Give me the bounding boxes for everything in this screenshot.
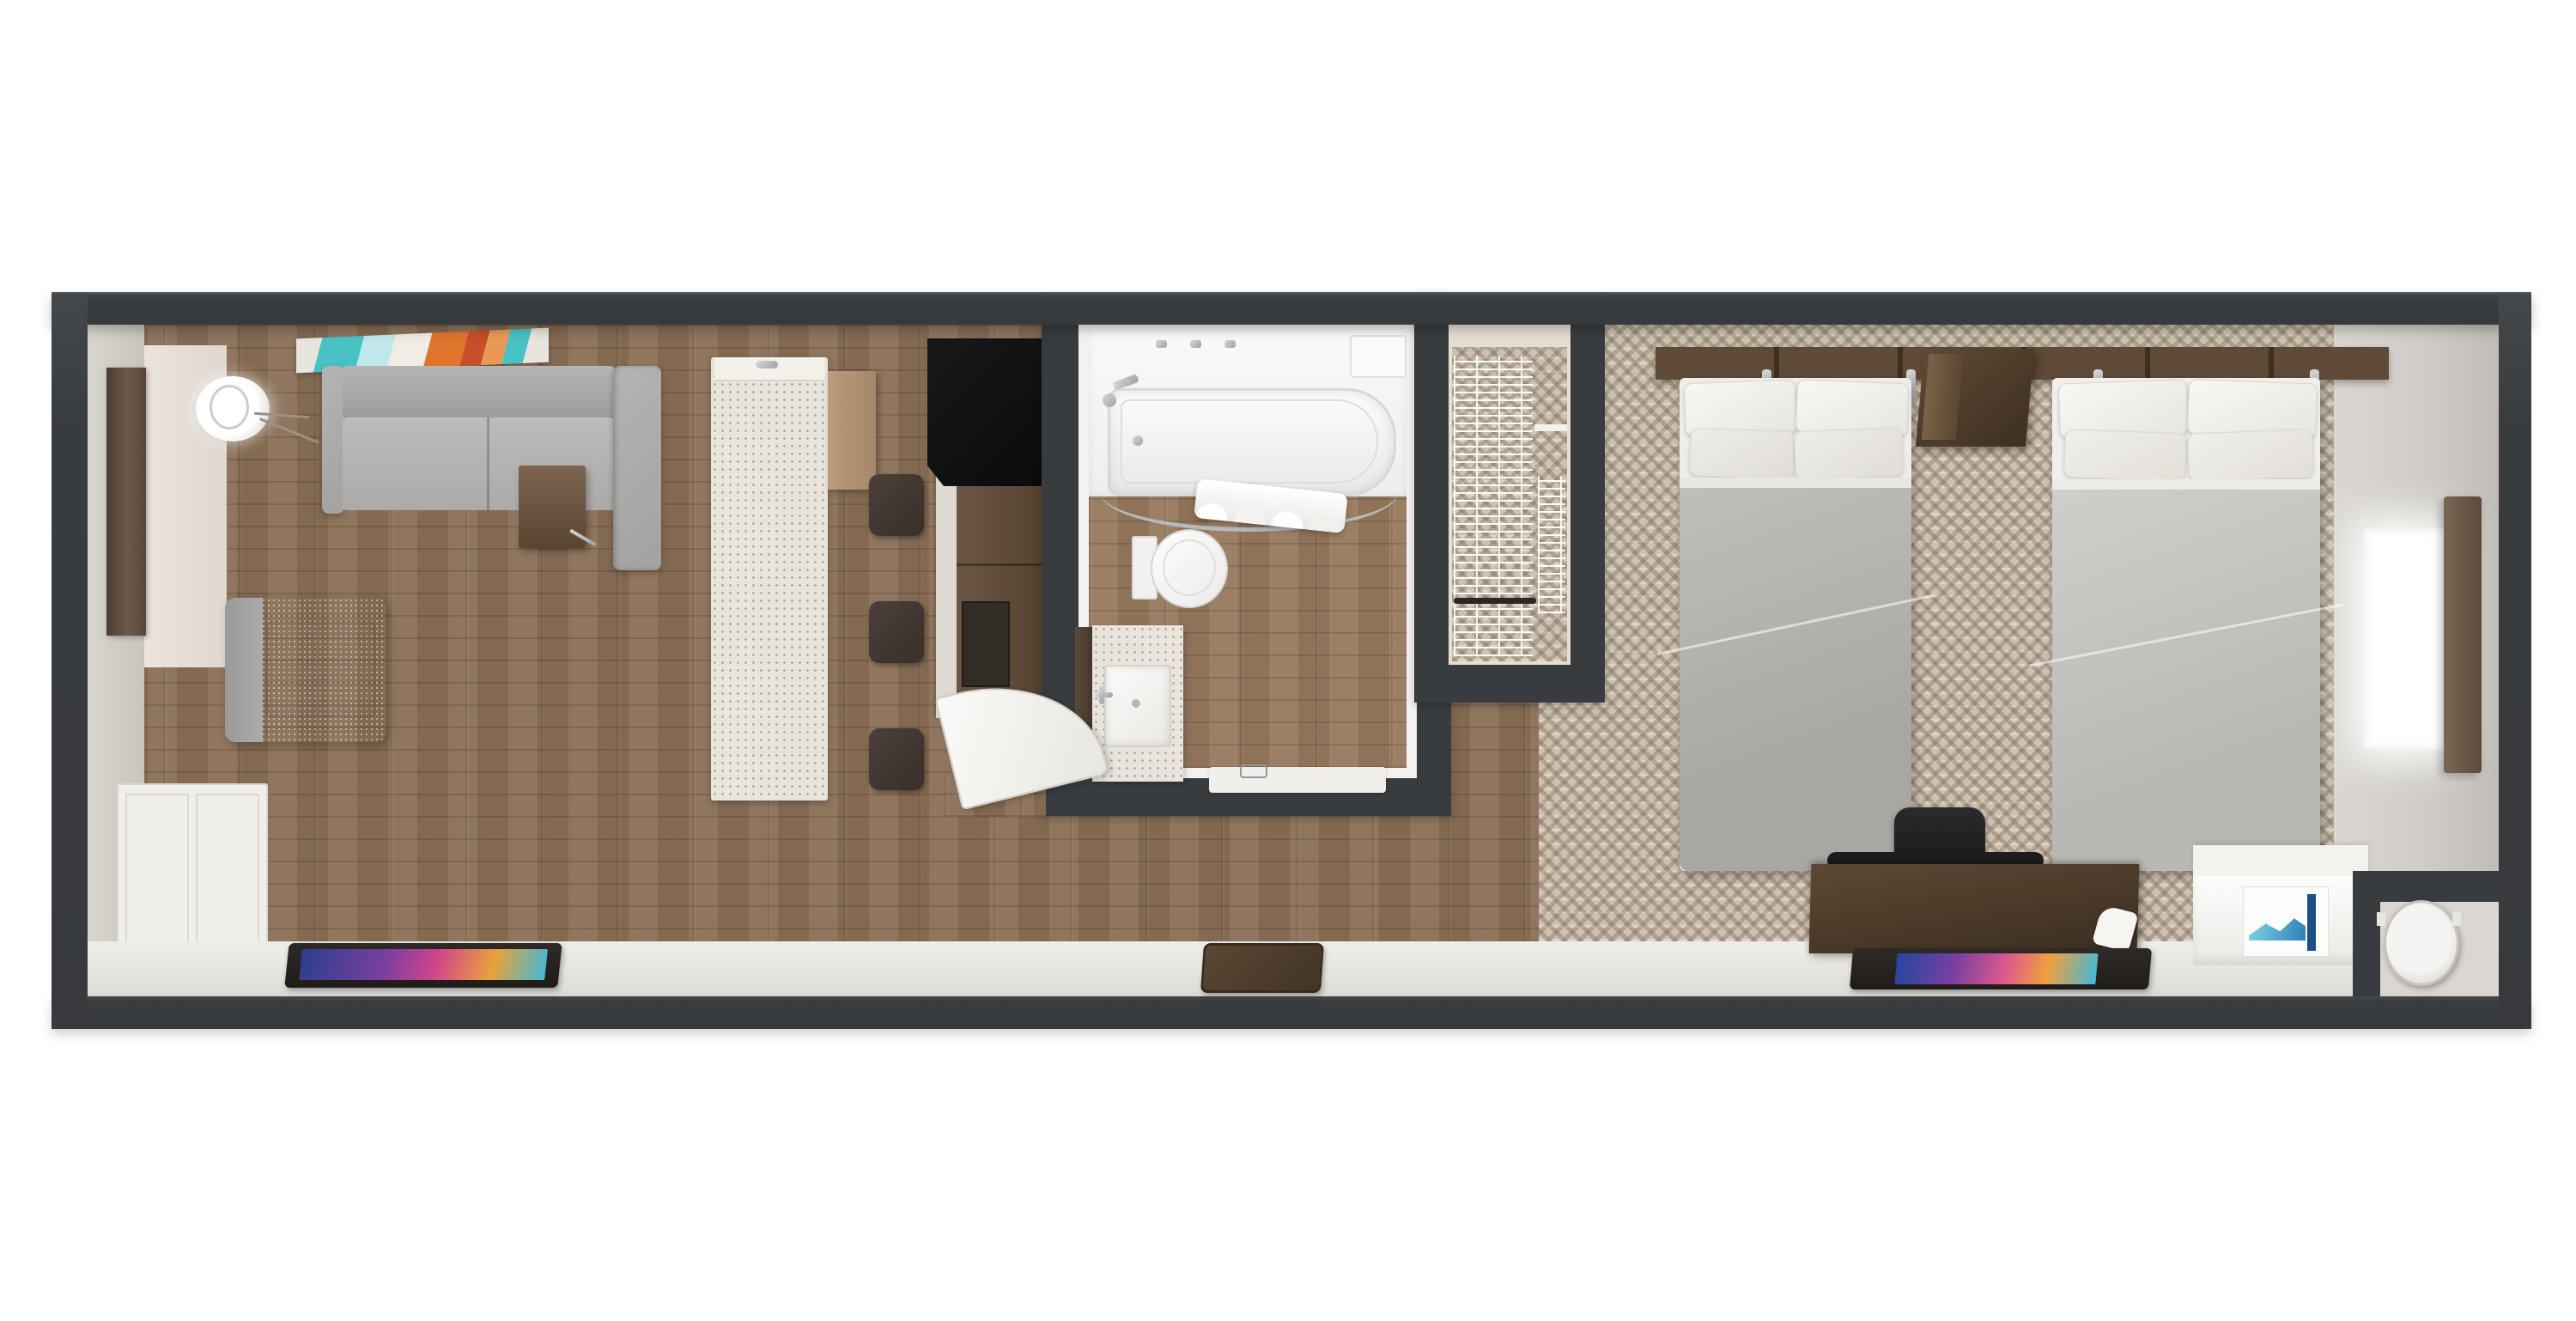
desk-paper <box>2092 904 2139 952</box>
tub-handle <box>1103 393 1116 407</box>
closet-side-shelf <box>1538 476 1565 613</box>
closet-shelf-edge <box>1534 424 1567 431</box>
sink-faucet-cross <box>1099 685 1104 704</box>
tub-jet <box>1224 340 1236 348</box>
tub-drain <box>1133 435 1143 446</box>
sofa-back <box>343 366 616 417</box>
tub-shelf <box>1350 335 1406 378</box>
bar-stool <box>869 474 924 536</box>
cabinet-seam <box>957 563 1044 566</box>
bed2-pillow <box>2187 429 2314 481</box>
tub-jet <box>1156 340 1167 348</box>
bedroom-tv-screen <box>1894 953 2098 984</box>
window-curtain <box>2444 496 2482 773</box>
mat-towel-bar <box>1240 764 1267 778</box>
bed2-pillow <box>2063 429 2187 482</box>
bed-2 <box>2052 378 2320 871</box>
artwork-wave <box>2249 916 2306 941</box>
work-desk <box>1809 864 2140 953</box>
bath-mat <box>1209 767 1386 793</box>
alcove-wall-vertical <box>2353 871 2380 996</box>
closet-wire-shelving <box>1454 356 1533 656</box>
bed1-fold-line <box>1656 594 1934 656</box>
side-table <box>519 466 586 548</box>
bed2-duvet <box>2052 479 2320 871</box>
ac-unit <box>2384 900 2459 986</box>
base-cabinets <box>957 486 1044 718</box>
wall-bottom <box>52 996 2531 1029</box>
ac-unit-tab <box>2452 912 2461 926</box>
tall-wood-cabinet <box>828 371 876 490</box>
tub-jet <box>1190 340 1201 348</box>
sink-faucet <box>1096 692 1113 697</box>
black-countertop <box>927 338 1044 486</box>
living-room-tv-screen <box>299 949 548 980</box>
nightstand-top-face <box>1922 354 1964 440</box>
office-chair <box>1894 807 1985 859</box>
ac-unit-tab <box>2377 912 2385 926</box>
mirror-panel <box>106 368 146 636</box>
sofa-left-armrest <box>322 366 344 514</box>
bedroom-window <box>2363 528 2449 750</box>
luggage-bench-front <box>2193 876 2368 965</box>
wall-left <box>52 294 88 1029</box>
counter-appliance <box>962 601 1010 687</box>
vanity-counter <box>1092 625 1183 782</box>
floorplan-screenshot: { "image_type": "3d-floorplan-top-view",… <box>0 0 2576 1321</box>
bed1-pillow <box>1689 428 1795 479</box>
bed1-sheet-fold <box>1680 478 1911 488</box>
bed1-duvet <box>1680 478 1911 871</box>
sofa-chaise <box>613 366 661 570</box>
kitchen-island <box>711 357 828 801</box>
blue-artwork <box>2243 886 2329 957</box>
bed2-sheet-fold <box>2052 479 2320 490</box>
toilet-bowl <box>1151 529 1228 608</box>
closet-clothes-rod <box>1454 598 1536 604</box>
bed-1 <box>1680 378 1911 871</box>
wall-top <box>52 294 2531 325</box>
sink-drain <box>1132 699 1140 708</box>
armchair-cushion <box>266 620 376 718</box>
armchair <box>225 598 386 742</box>
bed2-fold-line <box>2029 604 2343 667</box>
entry-doormat <box>1200 943 1324 993</box>
bed1-pillow <box>1794 428 1904 479</box>
island-faucet <box>756 361 778 368</box>
closet-interior <box>1449 321 1571 665</box>
bar-stool <box>869 728 924 790</box>
sofa-seat-seam <box>487 417 489 510</box>
toilet-seat-ring <box>1163 539 1216 596</box>
artwork-bar <box>2307 894 2316 951</box>
wall-nightstand <box>1916 349 2034 447</box>
floor-lamp <box>196 376 270 441</box>
wall-right <box>2499 294 2531 1029</box>
lamp-inner-ring <box>210 385 249 429</box>
armchair-back <box>225 598 263 742</box>
bar-stool <box>869 601 924 663</box>
bedroom-tv <box>1850 948 2152 989</box>
luggage-bench-top <box>2193 845 2368 876</box>
living-room-tv <box>284 943 562 988</box>
